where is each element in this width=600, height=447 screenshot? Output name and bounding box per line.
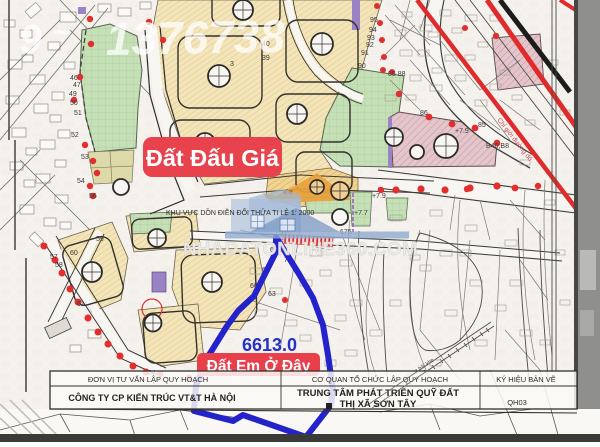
svg-text:95: 95 [370,17,378,24]
svg-text:1376738: 1376738 [105,10,285,65]
svg-text:59: 59 [96,236,104,243]
svg-text:85: 85 [478,122,486,129]
svg-text:49: 49 [69,91,77,98]
svg-text:KÝ HIỆU BẢN VẼ: KÝ HIỆU BẢN VẼ [496,375,556,384]
svg-text:NHADATONLINE360.COM: NHADATONLINE360.COM [183,238,418,259]
svg-text:TRUNG TÂM PHÁT TRIỂN QUỸ ĐẤT: TRUNG TÂM PHÁT TRIỂN QUỸ ĐẤT [297,387,459,399]
svg-text:6613.0: 6613.0 [242,335,297,355]
svg-text:60: 60 [70,250,78,257]
svg-text:91: 91 [361,50,369,57]
svg-text:63: 63 [268,291,276,298]
svg-text:90: 90 [358,63,366,70]
svg-text:54: 54 [77,178,85,185]
svg-text:Đất Đấu Giá: Đất Đấu Giá [146,145,280,171]
svg-text:9: 9 [19,17,44,62]
svg-text:85 88: 85 88 [388,71,406,78]
svg-text:52: 52 [71,132,79,139]
svg-text:92: 92 [366,42,374,49]
svg-text:47: 47 [73,82,81,89]
svg-text:53: 53 [81,154,89,161]
svg-text:ĐƠN VỊ TƯ VẤN LẬP QUY HOẠCH: ĐƠN VỊ TƯ VẤN LẬP QUY HOẠCH [88,374,208,384]
svg-text:46: 46 [70,75,78,82]
svg-text:56: 56 [89,193,97,200]
svg-text:57: 57 [50,254,58,261]
svg-text:93: 93 [367,35,375,42]
svg-text:CÔNG TY CP KIẾN TRÚC VT&T HÀ N: CÔNG TY CP KIẾN TRÚC VT&T HÀ NỘI [68,392,235,403]
svg-text:B40,B8: B40,B8 [486,143,509,150]
svg-text:86: 86 [420,110,428,117]
svg-text:51: 51 [74,110,82,117]
svg-text:50: 50 [70,100,78,107]
svg-text:94: 94 [369,27,377,34]
svg-text:58: 58 [55,262,63,269]
svg-text:~: ~ [52,16,70,49]
svg-text:61: 61 [77,301,85,308]
svg-text:+7.7: +7.7 [354,210,368,217]
svg-text:+7.9: +7.9 [455,128,469,135]
svg-text:CƠ QUAN TỔ CHỨC LẬP QUY HOẠCH: CƠ QUAN TỔ CHỨC LẬP QUY HOẠCH [312,375,448,384]
svg-text:+7.9: +7.9 [372,193,386,200]
svg-text:QH03: QH03 [507,398,527,407]
